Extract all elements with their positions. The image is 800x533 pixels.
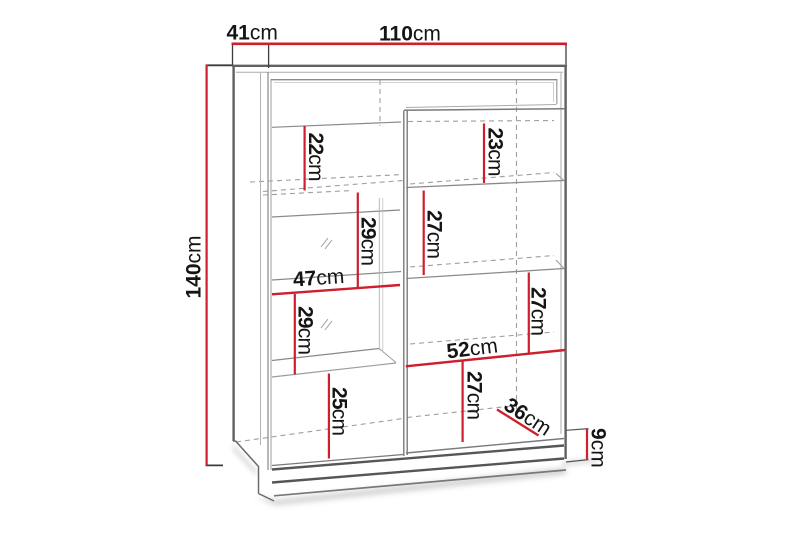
svg-text:29cm: 29cm: [294, 306, 317, 354]
svg-text:9cm: 9cm: [587, 428, 610, 468]
svg-text:140cm: 140cm: [183, 235, 206, 298]
svg-text:23cm: 23cm: [484, 128, 507, 176]
svg-text:22cm: 22cm: [304, 133, 327, 181]
svg-text:27cm: 27cm: [463, 371, 486, 419]
svg-text:25cm: 25cm: [328, 387, 351, 435]
svg-text:41cm: 41cm: [227, 22, 278, 45]
svg-text:110cm: 110cm: [379, 22, 441, 45]
svg-text:27cm: 27cm: [527, 287, 550, 335]
svg-text:29cm: 29cm: [357, 217, 380, 265]
svg-text:47cm: 47cm: [292, 265, 345, 292]
svg-text:27cm: 27cm: [422, 210, 445, 258]
